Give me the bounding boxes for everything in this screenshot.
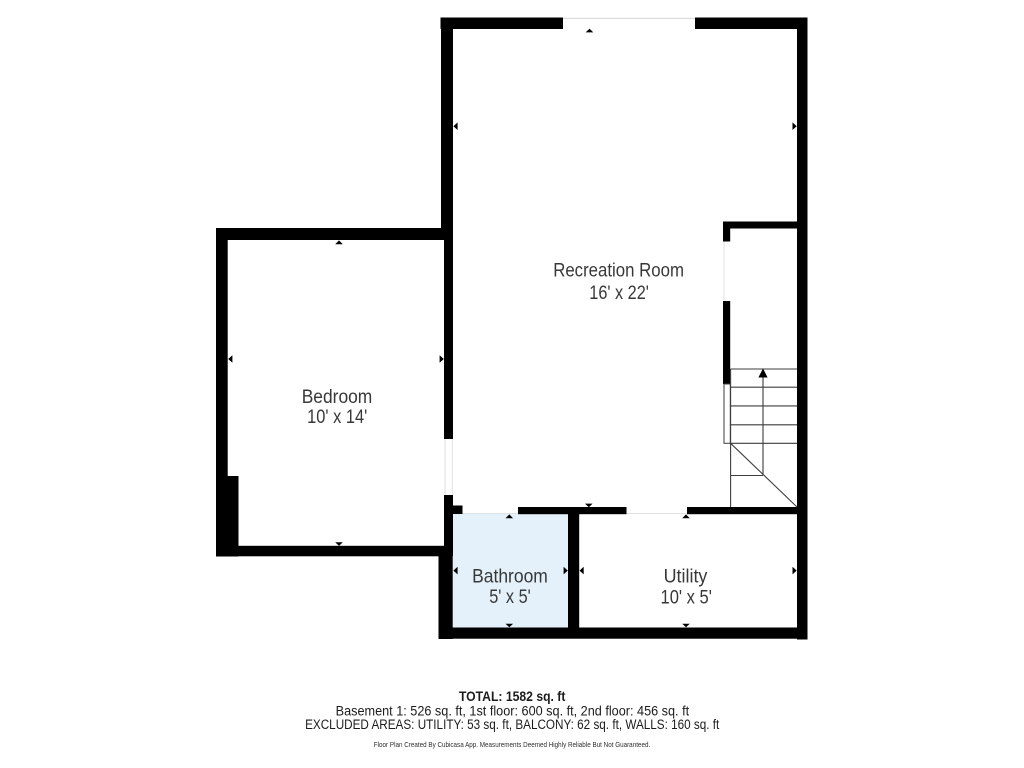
svg-text:Floor Plan Created By Cubicasa: Floor Plan Created By Cubicasa App. Meas… (374, 740, 650, 749)
svg-text:16' x 22': 16' x 22' (589, 282, 649, 304)
svg-text:10' x 14': 10' x 14' (307, 406, 367, 428)
svg-text:TOTAL: 1582 sq. ft: TOTAL: 1582 sq. ft (459, 689, 566, 704)
svg-text:10' x 5': 10' x 5' (661, 587, 712, 609)
svg-text:Bathroom: Bathroom (472, 566, 548, 588)
svg-text:Recreation Room: Recreation Room (553, 260, 684, 282)
svg-text:5' x 5': 5' x 5' (489, 586, 531, 608)
svg-text:Bedroom: Bedroom (302, 386, 373, 408)
svg-text:Utility: Utility (664, 566, 708, 588)
svg-text:EXCLUDED AREAS: UTILITY: 53 sq: EXCLUDED AREAS: UTILITY: 53 sq. ft, BALC… (305, 717, 719, 732)
